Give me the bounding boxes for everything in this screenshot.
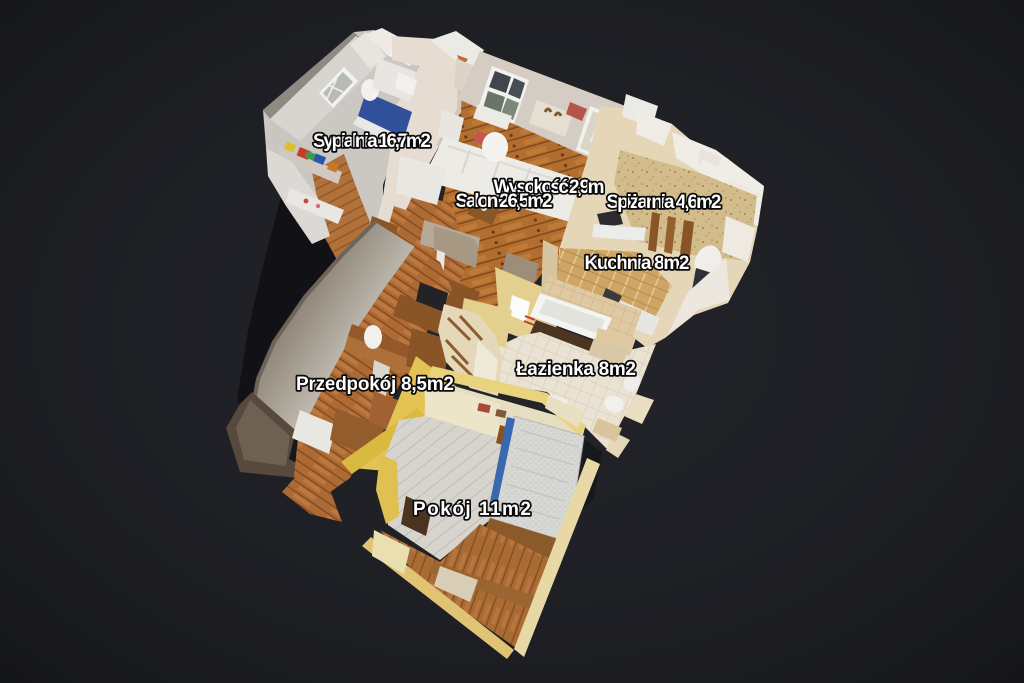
svg-text:Kuchnia 8m2: Kuchnia 8m2 [585, 253, 690, 274]
svg-text:Pokój 11m2: Pokój 11m2 [413, 499, 531, 520]
svg-text:Łazienka 8m2: Łazienka 8m2 [516, 359, 636, 380]
svg-text:Sypialnia 16,7m2: Sypialnia 16,7m2 [313, 131, 431, 152]
svg-text:Spiżarnia 4,6m2: Spiżarnia 4,6m2 [607, 192, 722, 213]
svg-text:Salon 26,5m2: Salon 26,5m2 [456, 191, 553, 212]
svg-text:Przedpokój 8,5m2: Przedpokój 8,5m2 [296, 374, 454, 395]
